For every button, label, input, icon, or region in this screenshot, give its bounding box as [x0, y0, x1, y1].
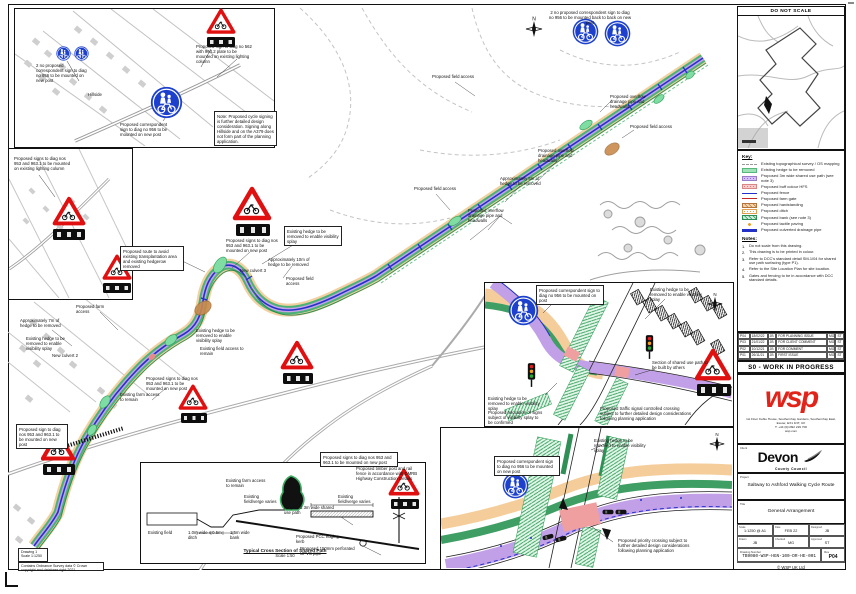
devon-logo: Devon County Council [738, 449, 844, 471]
map-annotation: Existing hedge to be removed to enable v… [488, 396, 540, 411]
sign-plate [103, 283, 131, 293]
drawing-number-cell: Drawing Number TB9080-WSP-HGN-100-DR-HE-… [737, 548, 821, 562]
legend-swatch [742, 229, 757, 232]
info-field: Scale 1:1250 @ A1 [737, 524, 773, 536]
legend-item-label: Proposed tactile paving [761, 222, 803, 226]
map-annotation: Proposed signs to diag nos 953 and 963.1… [14, 156, 74, 171]
drawing-number-row: Drawing Number TB9080-WSP-HGN-100-DR-HE-… [737, 548, 845, 562]
car-icon [615, 509, 627, 515]
note-number: 3. [742, 257, 749, 266]
north-arrow-icon [708, 432, 726, 454]
note-text: Do not scale from this drawing. [749, 244, 802, 249]
info-field: Checked MG [773, 536, 809, 548]
drawing-number: TB9080-WSP-HGN-100-DR-HE-001 [738, 554, 820, 559]
info-field-value: JB [810, 529, 844, 533]
info-field-value: 1:1250 @ A1 [738, 529, 772, 533]
wsp-block: wsp 1st Floor Keble House, Southernhay G… [737, 374, 845, 444]
legend-swatch [742, 193, 757, 194]
map-annotation: Proposed correspondent sign to diag no 9… [120, 122, 175, 137]
map-annotation: Existing field [148, 530, 178, 535]
map-annotation: New culvert 3 [240, 268, 270, 273]
map-annotation: Existing hedge to be removed to enable v… [594, 438, 650, 453]
sign-plate [181, 413, 207, 423]
legend-item-label: Proposed buff colour HFS [761, 185, 808, 189]
map-annotation: Proposed field access [286, 276, 326, 286]
revision-label: Rev [824, 550, 829, 554]
info-field-label: Checked [775, 538, 785, 541]
title-label: Title [740, 502, 745, 506]
traffic-signal-icon [526, 362, 537, 388]
wsp-logo: wsp [738, 383, 844, 413]
map-annotation: New culvert 2 [52, 353, 80, 358]
revision-badge: P04 [822, 554, 844, 560]
warning-triangle-icon [232, 186, 272, 222]
map-annotation: Proposed 150mm perforated UPVC pipe [300, 546, 362, 556]
map-annotation: Proposed sign to diag no 562 with 964.2 … [196, 44, 254, 64]
map-annotation: Proposed correspondent sign to diag no 9… [494, 456, 560, 476]
map-annotation: Existing hedge to be removed to enable v… [196, 328, 246, 343]
map-annotation: Existing hedge to be removed to enable v… [284, 226, 342, 246]
map-annotation: Existing field/verge varies [338, 494, 372, 504]
note-text: Gates and fencing to be in accordance wi… [749, 274, 840, 283]
info-field: Date FEB 22 [773, 524, 809, 536]
note-number: 5. [742, 274, 749, 283]
map-annotation: Proposed PCC edging kerb [296, 534, 340, 544]
north-arrow-icon [524, 16, 544, 40]
map-annotation: Note: Proposed cycle signing is further … [214, 111, 277, 146]
map-annotation: Existing hedge to be removed to enable v… [26, 336, 74, 351]
legend-swatch [742, 198, 757, 199]
map-annotation: Approximately 5m of hedge to be removed [500, 176, 550, 186]
legend-item-label: Proposed ditch [761, 209, 788, 213]
legend-item-label: Existing hedge to be removed [761, 168, 815, 172]
map-annotation: Proposed signs to diag nos 953 and 963.1… [226, 238, 280, 253]
info-field-value: JB [738, 541, 772, 545]
sign-plate [53, 229, 85, 240]
devon-logo-subtext: County Council [738, 467, 844, 471]
warning-triangle-icon [52, 196, 86, 227]
note-text: This drawing is to be printed in colour. [749, 250, 814, 255]
info-field-label: Scale [739, 526, 746, 529]
drawing-sheet: N [0, 0, 856, 594]
legend-item-label: Proposed bank (see note 3) [761, 216, 811, 220]
legend-item: Proposed buff colour HFS [742, 184, 840, 189]
map-annotation: Proposed signs to diag nos 953 and 963.1… [146, 376, 200, 391]
status-banner: S0 - WORK IN PROGRESS [737, 360, 845, 374]
map-annotation: Proposed relocation of signs subject of … [488, 410, 544, 425]
map-annotation: Existing field/verge varies [244, 494, 278, 504]
legend-swatch [742, 184, 757, 189]
legend-item-label: Proposed farm gate [761, 197, 797, 201]
legend-heading: Key: [742, 155, 840, 160]
notes-heading: Notes: [742, 237, 840, 242]
note-number: 2. [742, 250, 749, 255]
map-annotation: Proposed sign to diag nos 953 and 963.1 … [16, 424, 68, 449]
legend-item: Proposed culverted drainage pipe [742, 228, 840, 232]
note-number: 4. [742, 267, 749, 272]
note-number: 1. [742, 244, 749, 249]
legend-item: Existing topographical survey / OS mappi… [742, 162, 840, 166]
map-annotation: Existing hedge to be removed to enable v… [650, 287, 706, 302]
map-annotation: Existing field access to remain [200, 346, 244, 356]
map-annotation: Proposed priority crossing subject to fu… [618, 538, 700, 553]
map-annotation: 1.5m wide bank [230, 530, 260, 540]
map-annotation: Proposed overflow drainage pipe and head… [610, 94, 662, 109]
wsp-address-line: 1st Floor Keble House, Southernhay Garde… [741, 417, 841, 425]
legend-item: Proposed tactile paving [742, 222, 840, 227]
sign-plate [43, 464, 75, 475]
shared-use-sign-icon [74, 46, 89, 61]
legend-item-label: Proposed fence [761, 191, 789, 195]
note-item: 2. This drawing is to be printed in colo… [742, 250, 840, 255]
devon-logo-text: Devon [758, 450, 798, 464]
legend-items: Existing topographical survey / OS mappi… [742, 162, 840, 233]
info-field-label: Designed [811, 526, 822, 529]
note-text: Refer to the Site Location Plan for site… [749, 267, 830, 272]
map-annotation: Proposed overflow drainage pipe and head… [468, 208, 520, 223]
legend-item: Proposed farm gate [742, 197, 840, 201]
legend-item-label: Proposed 3m wide shared use path (see no… [761, 174, 840, 183]
map-annotation: Proposed field access [414, 186, 458, 191]
os-credit-text: Contains Ordnance Survey data © Crown co… [21, 564, 101, 573]
legend-swatch [742, 209, 757, 214]
note-item: 5. Gates and fencing to be in accordance… [742, 274, 840, 283]
map-annotation: Proposed field access [630, 124, 676, 129]
note-item: 4. Refer to the Site Location Plan for s… [742, 267, 840, 272]
sign-plate [697, 384, 731, 396]
map-annotation: Section of shared use path to be built b… [652, 360, 708, 370]
project-block: Project Saltway to Ashford Walking Cycle… [737, 473, 845, 500]
warning-triangle-icon [280, 340, 314, 371]
map-annotation: Existing farm access to remain [120, 392, 160, 402]
map-annotation: Proposed field access [432, 74, 480, 79]
do-not-scale-label: DO NOT SCALE [738, 7, 844, 16]
map-annotation: Proposed route to avoid existing transpl… [120, 246, 184, 271]
map-annotation: 2 no proposed correspondent sign to diag… [548, 10, 632, 25]
client-block: Client Devon County Council [737, 444, 845, 473]
legend-item: Proposed 3m wide shared use path (see no… [742, 174, 840, 183]
legend-swatch [742, 164, 757, 165]
scale-text: Scale 1:1250 [21, 554, 45, 558]
registration-tick [848, 2, 854, 4]
drawing-number-label: Drawing Number [740, 550, 761, 554]
note-item: 1. Do not scale from this drawing. [742, 244, 840, 249]
info-field-value: FEB 22 [774, 529, 808, 533]
revision-table: P04 18/02/22 JB FOR PLANNING ISSUE MG ST… [737, 332, 845, 360]
keyplan-map [738, 16, 844, 148]
map-annotation: Existing farm access to remain [226, 478, 270, 488]
legend-item: Proposed fence [742, 191, 840, 195]
map-annotation: Proposed correspondent sign to diag no 9… [536, 285, 604, 305]
legend-swatch [742, 222, 757, 227]
legend-item: Proposed hardstanding [742, 203, 840, 208]
project-name: Saltway to Ashford Walking Cycle Route [738, 483, 844, 488]
map-annotation: Approximately 10m of hedge to be removed [268, 257, 314, 267]
sign-plate [283, 373, 313, 384]
map-annotation: Proposed overflow drainage pipe and head… [538, 148, 590, 163]
legend-item: Proposed ditch [742, 209, 840, 214]
project-label: Project [740, 475, 749, 479]
info-field-label: Date [775, 526, 780, 529]
map-annotation: Proposed 3m wide shared use path [284, 505, 340, 515]
info-field-value: ST [810, 541, 844, 545]
legend-item: Proposed bank (see note 3) [742, 215, 840, 220]
map-annotation: Proposed signs to diag nos 953 and 963.1… [320, 452, 398, 467]
map-annotation: 1.0m wide x 0.5m ditch [188, 530, 222, 540]
drawing-title: General Arrangement [738, 509, 844, 514]
info-field: Drawn JB [737, 536, 773, 548]
keyplan-panel: DO NOT SCALE [737, 6, 845, 150]
wsp-web: wsp.com [741, 429, 841, 433]
shared-use-sign-icon [150, 86, 183, 119]
shared-use-sign-icon [508, 295, 539, 326]
map-annotation: 2 no proposed correspondent sign to diag… [36, 63, 88, 83]
traffic-signal-icon [644, 334, 655, 360]
scale-box: Drawing 1 Scale 1:1250 [18, 548, 48, 562]
info-block: Scale 1:1250 @ A1 Date FEB 22 Designed J… [737, 524, 845, 566]
map-annotation: Proposed farm access [76, 304, 116, 314]
legend-item-label: Existing topographical survey / OS mappi… [761, 162, 840, 166]
devon-swoosh-icon [802, 449, 824, 463]
map-annotation: Hillside [88, 92, 118, 97]
warning-triangle-icon [206, 8, 236, 35]
map-annotation: Approximately 7m of hedge to be removed [20, 318, 64, 328]
sign-plate [391, 499, 419, 509]
info-field-label: Drawn [739, 538, 747, 541]
legend-swatch [742, 176, 757, 181]
os-credit-box: Contains Ordnance Survey data © Crown co… [18, 562, 104, 571]
map-annotation: Proposed traffic signal controlled cross… [600, 406, 692, 421]
legend-item-label: Proposed hardstanding [761, 203, 803, 207]
sign-plate [236, 224, 270, 236]
legend-swatch [742, 168, 757, 173]
map-annotation: Proposed timber post and rail fence in a… [356, 466, 418, 481]
shared-use-sign-icon [56, 46, 71, 61]
legend-item: Existing hedge to be removed [742, 168, 840, 173]
info-field-label: Approved [811, 538, 822, 541]
info-fields: Scale 1:1250 @ A1 Date FEB 22 Designed J… [737, 524, 845, 548]
north-arrow-icon [706, 292, 724, 314]
revision-cell: Rev P04 [821, 548, 845, 562]
registration-mark [5, 572, 18, 587]
note-item: 3. Refer to DCC's standard detail SM-1/0… [742, 257, 840, 266]
legend-swatch [742, 203, 757, 208]
legend-panel: Key: Existing topographical survey / OS … [737, 150, 845, 332]
car-icon [602, 509, 614, 515]
title-block: Title General Arrangement [737, 500, 845, 524]
legend-item-label: Proposed culverted drainage pipe [761, 228, 822, 232]
copyright-notice: © WSP UK Ltd [737, 562, 845, 570]
notes-list: 1. Do not scale from this drawing. 2. Th… [742, 244, 840, 283]
wsp-address: 1st Floor Keble House, Southernhay Garde… [738, 417, 844, 433]
info-field: Approved ST [809, 536, 845, 548]
info-field-value: MG [774, 541, 808, 545]
note-text: Refer to DCC's standard detail SM-1/04 f… [749, 257, 840, 266]
info-field: Designed JB [809, 524, 845, 536]
legend-swatch [742, 215, 757, 220]
